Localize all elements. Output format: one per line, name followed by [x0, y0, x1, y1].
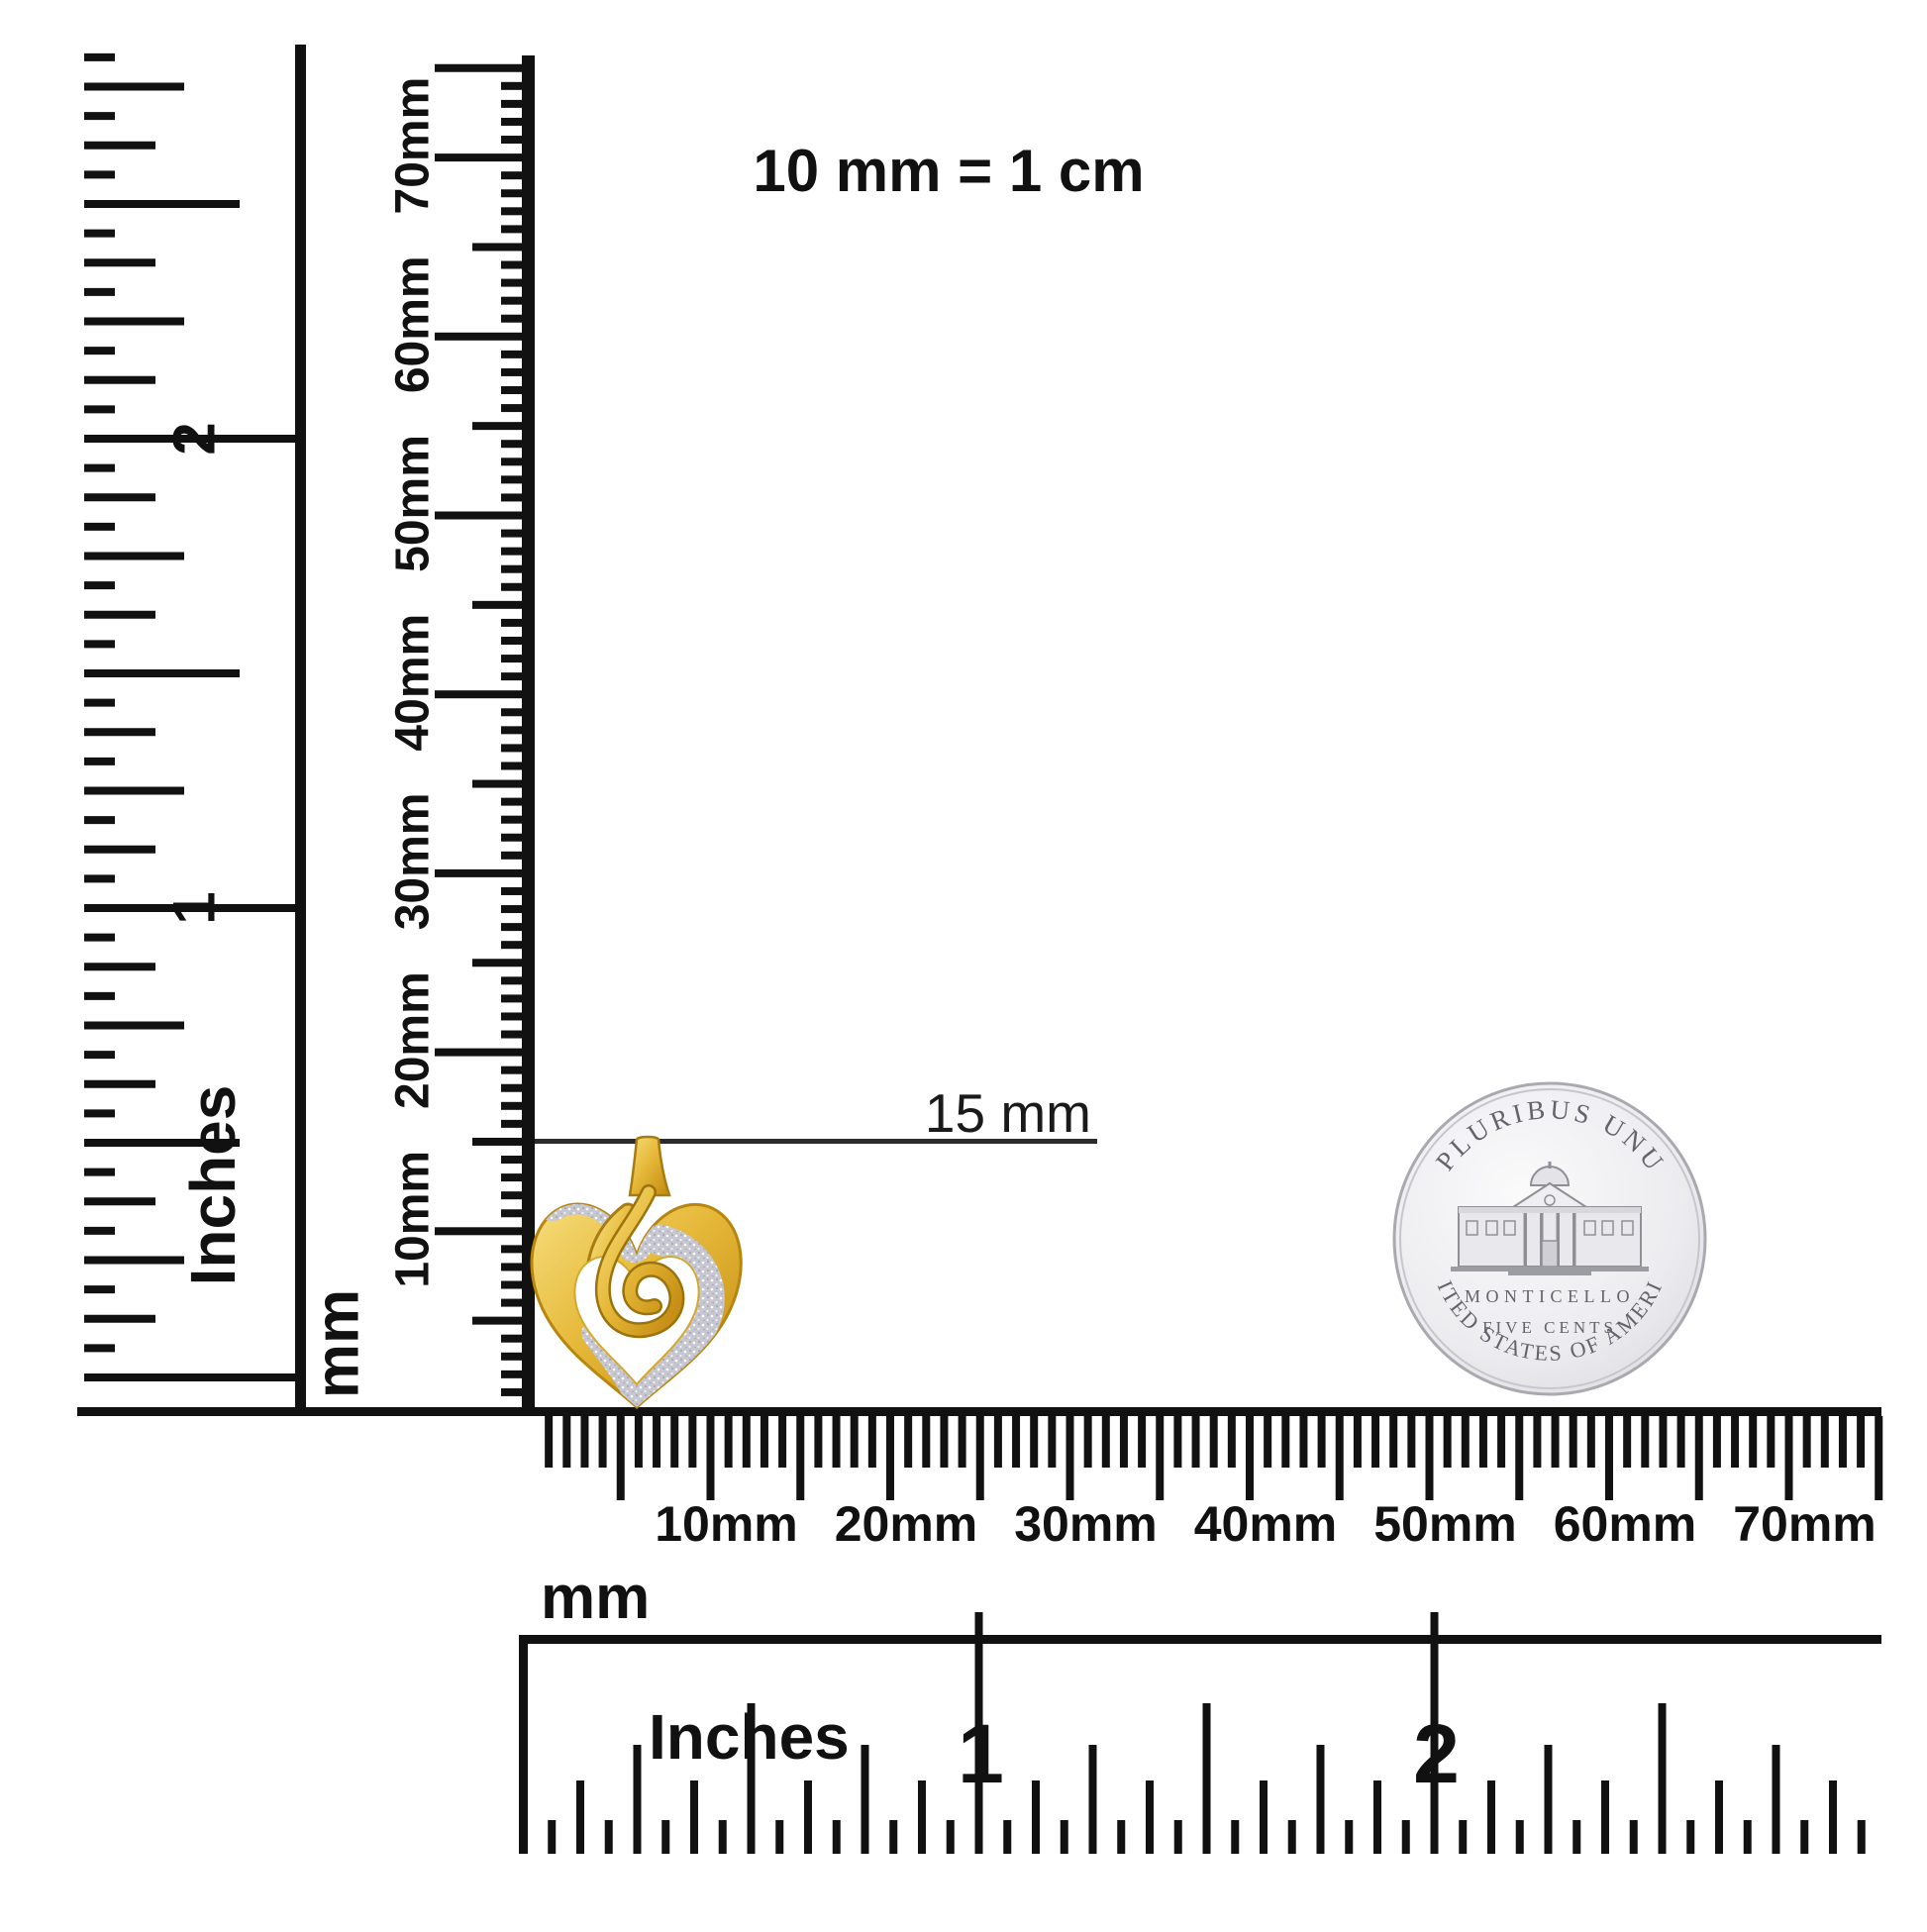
bottom-mm-ruler: 10mm20mm30mm40mm50mm60mm70mm [545, 1416, 1882, 1552]
measurement-scene: 1210mm20mm30mm40mm50mm60mm70mm10mm20mm30… [0, 0, 1927, 1927]
vertical-mm-tick-label: 70mm [387, 77, 440, 215]
left-inch-unit-label: Inches [177, 1085, 249, 1286]
vertical-mm-tick-label: 20mm [387, 971, 440, 1109]
bottom-mm-tick-label: 10mm [655, 1496, 798, 1552]
bottom-mm-tick-label: 20mm [835, 1496, 978, 1552]
vertical-mm-tick-label: 10mm [387, 1151, 440, 1288]
bottom-mm-tick-label: 50mm [1373, 1496, 1517, 1552]
left-inch-numeral: 1 [161, 891, 228, 924]
measurement-callout: 15 mm [535, 1082, 1097, 1144]
bottom-mm-tick-label: 70mm [1733, 1496, 1876, 1552]
nickel-coin-image: E PLURIBUS UNUM MONTICELLO FIVE CENTS [1394, 1083, 1705, 1394]
bottom-mm-tick-label: 60mm [1554, 1496, 1697, 1552]
bottom-inch-unit-label: Inches [649, 1701, 850, 1773]
vertical-mm-tick-label: 30mm [387, 793, 440, 931]
vertical-mm-tick-label: 50mm [387, 435, 440, 572]
bottom-mm-unit-label: mm [541, 1564, 650, 1632]
bottom-inch-numeral: 1 [958, 1707, 1004, 1800]
bottom-inch-numeral: 2 [1413, 1707, 1460, 1800]
heart-pendant-image [532, 1137, 741, 1407]
mm-cm-equivalence-note: 10 mm = 1 cm [753, 138, 1144, 204]
bottom-mm-tick-label: 30mm [1014, 1496, 1158, 1552]
vertical-mm-ruler: 10mm20mm30mm40mm50mm60mm70mm [387, 55, 536, 1411]
ruler-baseline [77, 1407, 1881, 1416]
bottom-mm-tick-label: 40mm [1194, 1496, 1338, 1552]
rulers: 1210mm20mm30mm40mm50mm60mm70mm10mm20mm30… [77, 45, 1882, 1854]
left-inch-numeral: 2 [161, 422, 228, 455]
measurement-callout-label: 15 mm [925, 1082, 1091, 1144]
coin-building-label: MONTICELLO [1465, 1286, 1635, 1306]
vertical-mm-unit-label: mm [304, 1289, 372, 1398]
vertical-mm-tick-label: 40mm [387, 614, 440, 752]
vertical-mm-tick-label: 60mm [387, 255, 440, 393]
